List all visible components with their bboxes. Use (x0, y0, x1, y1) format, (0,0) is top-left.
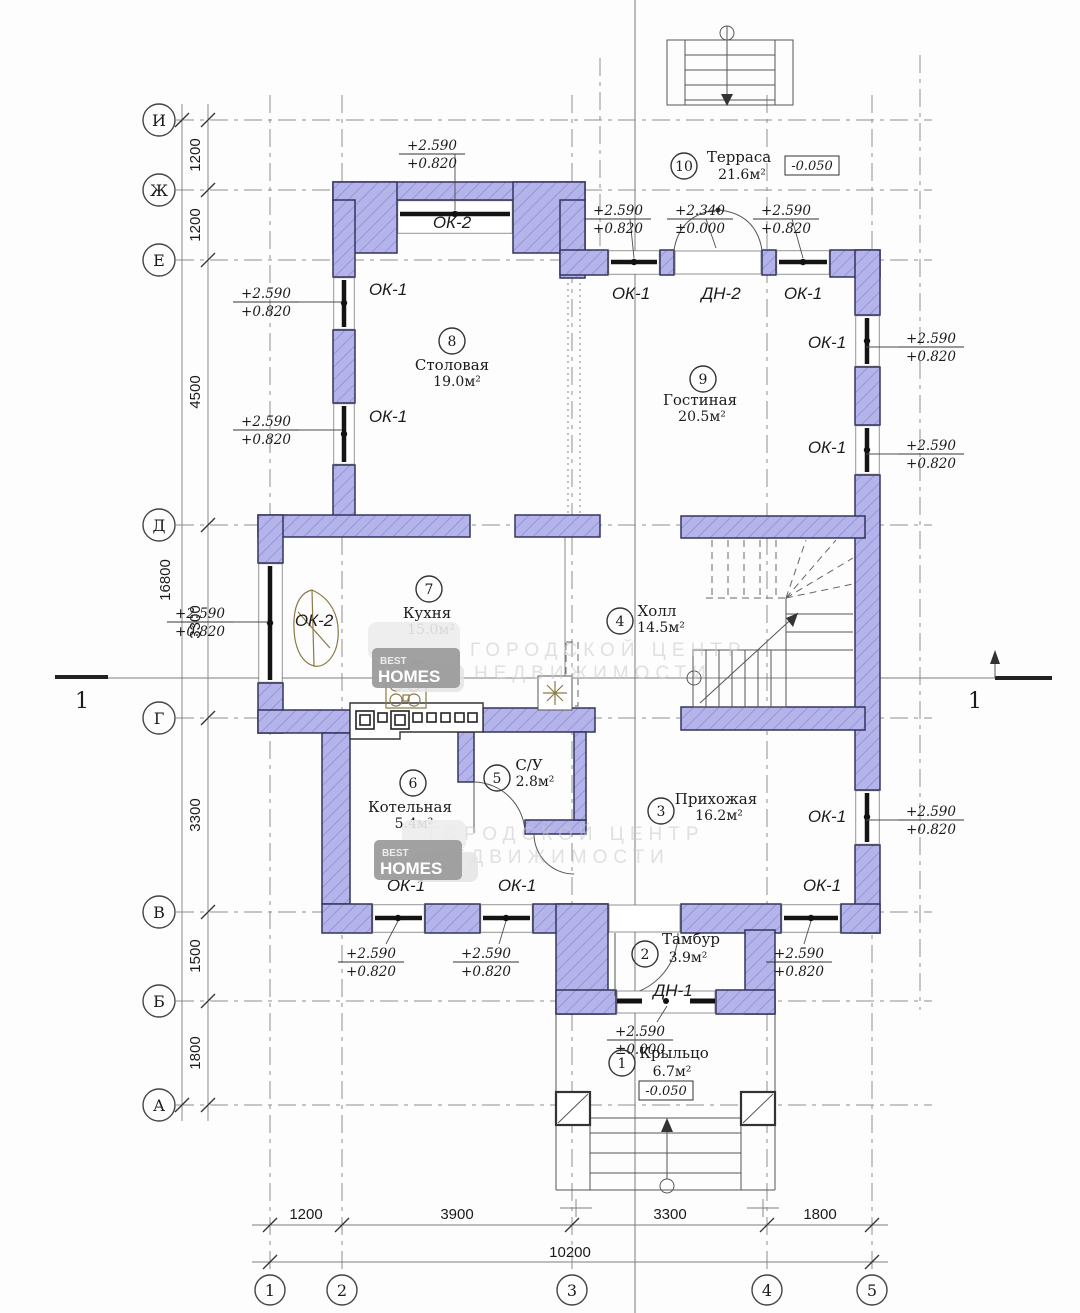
elevation-top: +2.590 (241, 286, 291, 302)
elevation-top: +2.590 (774, 946, 824, 962)
dim-left: 1500 (187, 939, 204, 972)
dim-left: 4500 (187, 375, 204, 408)
window (334, 404, 354, 464)
dim-bottom: 1200 (289, 1206, 322, 1223)
elevation-bottom: ±0.000 (675, 221, 725, 237)
logo-best-text: BEST (382, 848, 409, 859)
wall-segment (681, 707, 865, 730)
elevation-bottom: +0.820 (346, 964, 396, 980)
axis-label-2: 2 (337, 1281, 347, 1300)
window-leader-dot (800, 259, 806, 265)
opening-label-ОК-1: ОК-1 (498, 876, 536, 895)
room-name: Столовая (415, 356, 489, 374)
wall-segment (556, 990, 616, 1014)
section-label-left: 1 (75, 689, 89, 714)
stair-winder-dashed (786, 540, 853, 598)
axis-label-В: В (153, 903, 165, 922)
wall-segment (322, 904, 372, 933)
window (856, 426, 879, 474)
wall-segment (574, 732, 586, 820)
logo-best-text: BEST (380, 656, 407, 667)
room-name: Гостиная (663, 391, 737, 409)
tambour-door-opening (609, 905, 680, 932)
wall-segment (855, 250, 880, 315)
axis-label-4: 4 (762, 1281, 772, 1300)
wall-segment (855, 367, 880, 425)
wall-segment (322, 733, 350, 904)
opening-label-ДН-2: ДН-2 (699, 284, 741, 303)
room-number: 3 (657, 804, 666, 820)
opening-label-ОК-1: ОК-1 (803, 876, 841, 895)
axis-label-3: 3 (567, 1281, 577, 1300)
elevation-bottom: +0.820 (774, 964, 824, 980)
wall-segment (681, 904, 781, 933)
wall-segment (560, 250, 608, 275)
room-area: 2.8м² (516, 774, 555, 790)
opening-label-ОК-1: ОК-1 (808, 438, 846, 457)
elevation-mark: +2.590+0.820 (753, 203, 819, 237)
elevation-mark: +2.590+0.820 (766, 946, 832, 980)
room-name: Кухня (403, 604, 451, 622)
wall-segment (660, 250, 674, 275)
elevation-top: +2.340 (675, 203, 725, 219)
axis-label-Д: Д (152, 516, 165, 535)
wall-segment (333, 330, 355, 403)
window-leader-dot (267, 620, 273, 626)
section-arrow-head (990, 650, 1000, 664)
window-leader-dot (864, 338, 870, 344)
wall-segment (681, 516, 865, 538)
room-area: 16.2м² (695, 808, 743, 824)
window-leader-dot (631, 259, 637, 265)
elevation-mark: +2.590+0.820 (898, 438, 964, 472)
opening-label-ОК-1: ОК-1 (369, 280, 407, 299)
window (777, 251, 829, 274)
logo-homes-text: HOMES (378, 667, 440, 686)
elevation-mark: +2.590+0.820 (898, 804, 964, 838)
window (259, 564, 282, 682)
wall-segment (333, 200, 355, 277)
room-number: 2 (641, 947, 650, 963)
opening-label-ОК-2: ОК-2 (295, 611, 334, 630)
elevation-top: +2.590 (593, 203, 643, 219)
wall-segment (258, 710, 350, 733)
watermark-line1: ГОРОДСКОЙ ЦЕНТР (470, 639, 747, 661)
window-leader-dot (503, 915, 509, 921)
window-leader-dot (341, 431, 347, 437)
axis-label-5: 5 (867, 1281, 877, 1300)
section-label-right: 1 (968, 689, 982, 714)
axis-label-Г: Г (154, 709, 165, 728)
opening-label-ОК-1: ОК-1 (784, 284, 822, 303)
elevation-mark: +2.590+0.820 (233, 286, 299, 320)
elevation-top: +2.590 (461, 946, 511, 962)
level-mark: -0.050 (785, 156, 839, 175)
room-number: 1 (618, 1056, 627, 1072)
door-dn2-arc-right (719, 210, 762, 250)
window (856, 316, 879, 366)
room-name: Тамбур (662, 930, 720, 948)
wall-segment (716, 990, 775, 1014)
room-label-9: 9Гостиная20.5м² (663, 366, 737, 425)
level-value: -0.050 (645, 1084, 687, 1099)
elevation-mark: +2.590+0.820 (233, 414, 299, 448)
elevation-top: +2.590 (241, 414, 291, 430)
room-number: 4 (616, 614, 625, 630)
elevation-top: +2.590 (906, 331, 956, 347)
porch-arrow-head (661, 1118, 673, 1132)
axis-label-Ж: Ж (150, 181, 168, 200)
elevation-top: +2.590 (407, 138, 457, 154)
room-area: 21.6м² (718, 167, 766, 183)
elevation-top: +2.590 (906, 804, 956, 820)
room-number: 10 (675, 159, 693, 175)
stairs (556, 26, 853, 1193)
room-label-5: 5С/У2.8м² (484, 756, 554, 791)
best-homes-logo: BEST HOMES (368, 622, 464, 692)
floor-plan-page: ОК-2ОК-1ОК-1ОК-2ОК-1ДН-2ОК-1ОК-1ОК-1ОК-1… (0, 0, 1080, 1313)
elevation-mark: +2.590+0.820 (453, 946, 519, 980)
watermark-line2: НЕДВИЖИМОСТИ (474, 663, 712, 684)
wall-segment (258, 515, 283, 563)
elevation-bottom: +0.820 (761, 221, 811, 237)
window (481, 905, 532, 932)
room-label-8: 8Столовая19.0м² (415, 328, 489, 390)
elevation-mark: +2.340±0.000 (667, 203, 733, 237)
room-number: 8 (448, 334, 457, 350)
total-dim-bottom: 10200 (549, 1244, 591, 1261)
dim-left: 1200 (187, 208, 204, 241)
room-name: Котельная (368, 798, 452, 816)
room-number: 5 (493, 771, 502, 787)
window-leader-dot (864, 447, 870, 453)
stair-winder-treads (786, 598, 853, 650)
window-leader-dot (808, 915, 814, 921)
elevation-top: +2.590 (346, 946, 396, 962)
axis-label-Б: Б (153, 992, 165, 1011)
room-label-3: 3Прихожая16.2м² (648, 790, 757, 824)
room-number: 7 (425, 582, 434, 598)
porch-stair-start (660, 1179, 674, 1193)
elevation-top: +2.590 (906, 438, 956, 454)
room-number: 9 (699, 372, 708, 388)
axis-label-И: И (152, 111, 166, 130)
dim-bottom: 1800 (803, 1206, 836, 1223)
opening-label-ОК-1: ОК-1 (369, 407, 407, 426)
room-area: 19.0м² (433, 374, 481, 390)
total-dim-left: 16800 (157, 559, 174, 601)
room-area: 3.9м² (669, 950, 708, 966)
wall-segment (483, 708, 595, 732)
room-area: 20.5м² (678, 409, 726, 425)
wall-segment (458, 732, 474, 782)
window (782, 905, 840, 932)
window-leader-dot (395, 915, 401, 921)
axis-label-Е: Е (153, 251, 165, 270)
stair-upper-flight-dashed (706, 540, 786, 598)
window (373, 905, 424, 932)
stair-direction-arrow (786, 613, 798, 627)
axis-bubbles: 1 1 16800 10200 ИЖЕДГВБА1234512001200450… (75, 104, 982, 1305)
axis-label-1: 1 (265, 1281, 275, 1300)
logo-homes-text: HOMES (380, 859, 442, 878)
room-name: Терраса (707, 148, 771, 166)
room-area: 14.5м² (637, 620, 685, 636)
opening-label-ОК-1: ОК-1 (808, 333, 846, 352)
elevation-bottom: +0.820 (593, 221, 643, 237)
wall-segment (515, 515, 600, 537)
room-number: 6 (409, 776, 418, 792)
elevation-bottom: +0.820 (461, 964, 511, 980)
opening-label-ОК-1: ОК-1 (808, 807, 846, 826)
dim-bottom: 3900 (440, 1206, 473, 1223)
wall-segment (425, 904, 480, 933)
dim-left: 3300 (187, 605, 204, 638)
window-leader-dot (341, 300, 347, 306)
room-name: Холл (638, 602, 677, 620)
elevation-bottom: +0.820 (241, 432, 291, 448)
elevation-bottom: +0.820 (906, 456, 956, 472)
window (334, 278, 354, 329)
wall-segment (333, 465, 355, 517)
wall-segment (762, 250, 776, 275)
level-mark: -0.050 (639, 1081, 693, 1100)
level-value: -0.050 (791, 159, 833, 174)
room-name: Крыльцо (639, 1044, 709, 1062)
wall-segment (258, 515, 470, 537)
axis-label-А: А (153, 1096, 165, 1115)
window (856, 791, 879, 844)
elevation-top: +2.590 (615, 1024, 665, 1040)
dim-left: 1800 (187, 1036, 204, 1069)
elevation-mark: +2.590+0.820 (338, 946, 404, 980)
elevation-bottom: +0.820 (241, 304, 291, 320)
room-name: С/У (515, 756, 543, 774)
elevation-mark: +2.590+0.820 (898, 331, 964, 365)
floor-plan-canvas: ОК-2ОК-1ОК-1ОК-2ОК-1ДН-2ОК-1ОК-1ОК-1ОК-1… (0, 0, 1080, 1313)
watermark: ГОРОДСКОЙ ЦЕНТР НЕДВИЖИМОСТИ ГОРОДСКОЙ Ц… (428, 639, 747, 868)
room-label-4: 4Холл14.5м² (607, 602, 685, 636)
room-label-10: 10Терраса21.6м² (671, 148, 771, 183)
opening-label-ОК-2: ОК-2 (433, 213, 472, 232)
window-leader-dot (864, 814, 870, 820)
dim-left: 1200 (187, 138, 204, 171)
elevation-bottom: +0.820 (407, 156, 457, 172)
elevation-bottom: +0.820 (906, 822, 956, 838)
door-dn2-opening (675, 251, 761, 274)
opening-label-ОК-1: ОК-1 (612, 284, 650, 303)
room-name: Прихожая (675, 790, 757, 808)
elevation-mark: +2.590+0.820 (585, 203, 651, 237)
wall-segment (841, 904, 880, 933)
opening-label-ДН-1: ДН-1 (651, 981, 692, 1000)
elevation-bottom: +0.820 (906, 349, 956, 365)
dim-left: 3300 (187, 798, 204, 831)
elevation-top: +2.590 (761, 203, 811, 219)
watermark-line1b: ГОРОДСКОЙ ЦЕНТР (428, 823, 705, 845)
dim-bottom: 3300 (653, 1206, 686, 1223)
room-area: 6.7м² (653, 1064, 692, 1080)
